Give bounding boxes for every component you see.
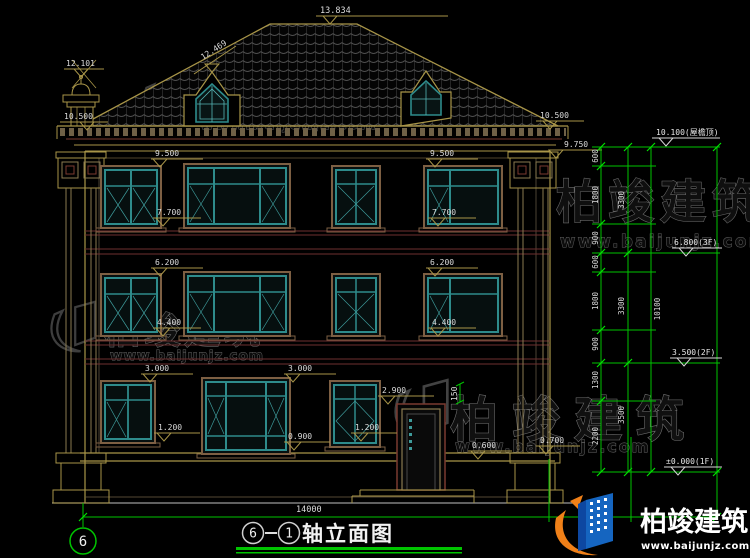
window-2f-small-left (96, 274, 166, 340)
svg-text:900: 900 (591, 337, 600, 351)
svg-text:9.500: 9.500 (430, 149, 454, 158)
svg-text:1800: 1800 (591, 185, 600, 204)
svg-text:150: 150 (450, 386, 459, 401)
svg-text:6.800(3F): 6.800(3F) (674, 238, 717, 247)
svg-text:±0.000(1F): ±0.000(1F) (666, 457, 714, 466)
cad-elevation-screenshot: 柏竣建筑 www.baijunjz.com 柏竣建筑 www.baijunjz.… (0, 0, 750, 558)
svg-text:4.400: 4.400 (157, 318, 181, 327)
brand-logo-text: 柏竣建筑 (640, 506, 748, 538)
brand-logo: 柏竣建筑 www.baijunjz.com (555, 493, 749, 555)
dim-chimney: 12.101 (64, 59, 104, 88)
window-3f-large-right (419, 166, 507, 232)
title-underline-thick (236, 547, 462, 550)
svg-text:0.600: 0.600 (472, 441, 496, 450)
dim-1f-top-left: 3.000 (141, 364, 193, 382)
svg-text:7.700: 7.700 (432, 208, 456, 217)
brand-logo-icon (555, 493, 613, 555)
svg-text:10.100(屋檐顶): 10.100(屋檐顶) (656, 127, 719, 137)
svg-text:600: 600 (591, 255, 600, 269)
watermark-brand-text: 柏竣建筑 (556, 175, 750, 229)
dim-1f-top-right: 3.000 (284, 364, 336, 382)
dim-ridge: 13.834 (316, 6, 448, 24)
svg-text:2.900: 2.900 (382, 386, 406, 395)
svg-text:3300: 3300 (617, 296, 626, 315)
svg-text:10.500: 10.500 (540, 111, 569, 120)
svg-text:10.500: 10.500 (64, 112, 93, 121)
entrance-door (397, 404, 445, 490)
watermark-url-text: www.baijunjz.com (110, 348, 264, 364)
window-1f-large (197, 378, 295, 458)
svg-text:12.101: 12.101 (66, 59, 95, 68)
svg-text:1.200: 1.200 (158, 423, 182, 432)
svg-text:0.900: 0.900 (288, 432, 312, 441)
svg-text:0.700: 0.700 (540, 436, 564, 445)
watermark-right: 柏竣建筑 www.baijunjz.com (556, 175, 750, 251)
brand-logo-url: www.baijunjz.com (641, 541, 750, 552)
total-width-label: 14000 (296, 505, 322, 515)
svg-text:6: 6 (249, 527, 257, 542)
window-3f-small-left (96, 166, 166, 232)
cornice (57, 126, 568, 158)
window-2f-large-left (179, 272, 295, 340)
svg-text:6.200: 6.200 (155, 258, 179, 267)
svg-text:7.700: 7.700 (157, 208, 181, 217)
svg-text:1: 1 (285, 527, 293, 542)
svg-text:4.400: 4.400 (432, 318, 456, 327)
svg-text:1800: 1800 (591, 291, 600, 310)
window-1f-narrow-center (325, 381, 385, 451)
svg-text:13.834: 13.834 (320, 6, 351, 16)
entrance-steps (352, 490, 474, 503)
window-1f-small-left (96, 381, 160, 447)
watermark-brand-icon (52, 302, 95, 352)
window-3f-large-left (179, 164, 295, 232)
svg-text:1.200: 1.200 (355, 423, 379, 432)
svg-text:900: 900 (591, 231, 600, 245)
svg-text:2200: 2200 (591, 426, 600, 445)
window-3f-narrow-center (327, 166, 385, 232)
svg-text:3300: 3300 (617, 190, 626, 209)
title-underline-thin (236, 552, 462, 554)
svg-text:9.500: 9.500 (155, 149, 179, 158)
svg-text:6: 6 (79, 534, 87, 550)
dim-1f-bottom-left: 1.200 (154, 423, 200, 441)
svg-text:9.750: 9.750 (564, 140, 588, 149)
svg-text:3500: 3500 (617, 405, 626, 424)
svg-text:3.000: 3.000 (288, 364, 312, 373)
svg-text:600: 600 (591, 149, 600, 163)
svg-text:3.500(2F): 3.500(2F) (672, 348, 715, 357)
chain-col3-label: 10100 (653, 297, 662, 320)
hip-roof (80, 24, 558, 126)
svg-text:3.000: 3.000 (145, 364, 169, 373)
title-text: 轴立面图 (302, 522, 394, 546)
drawing-title: 6 1 轴立面图 (236, 522, 462, 554)
svg-text:6.200: 6.200 (430, 258, 454, 267)
level-roof: 10.100(屋檐顶) (652, 127, 720, 146)
svg-text:1300: 1300 (591, 370, 600, 389)
window-2f-narrow-center (327, 274, 385, 340)
axis-bubble-left: 6 (70, 528, 96, 554)
